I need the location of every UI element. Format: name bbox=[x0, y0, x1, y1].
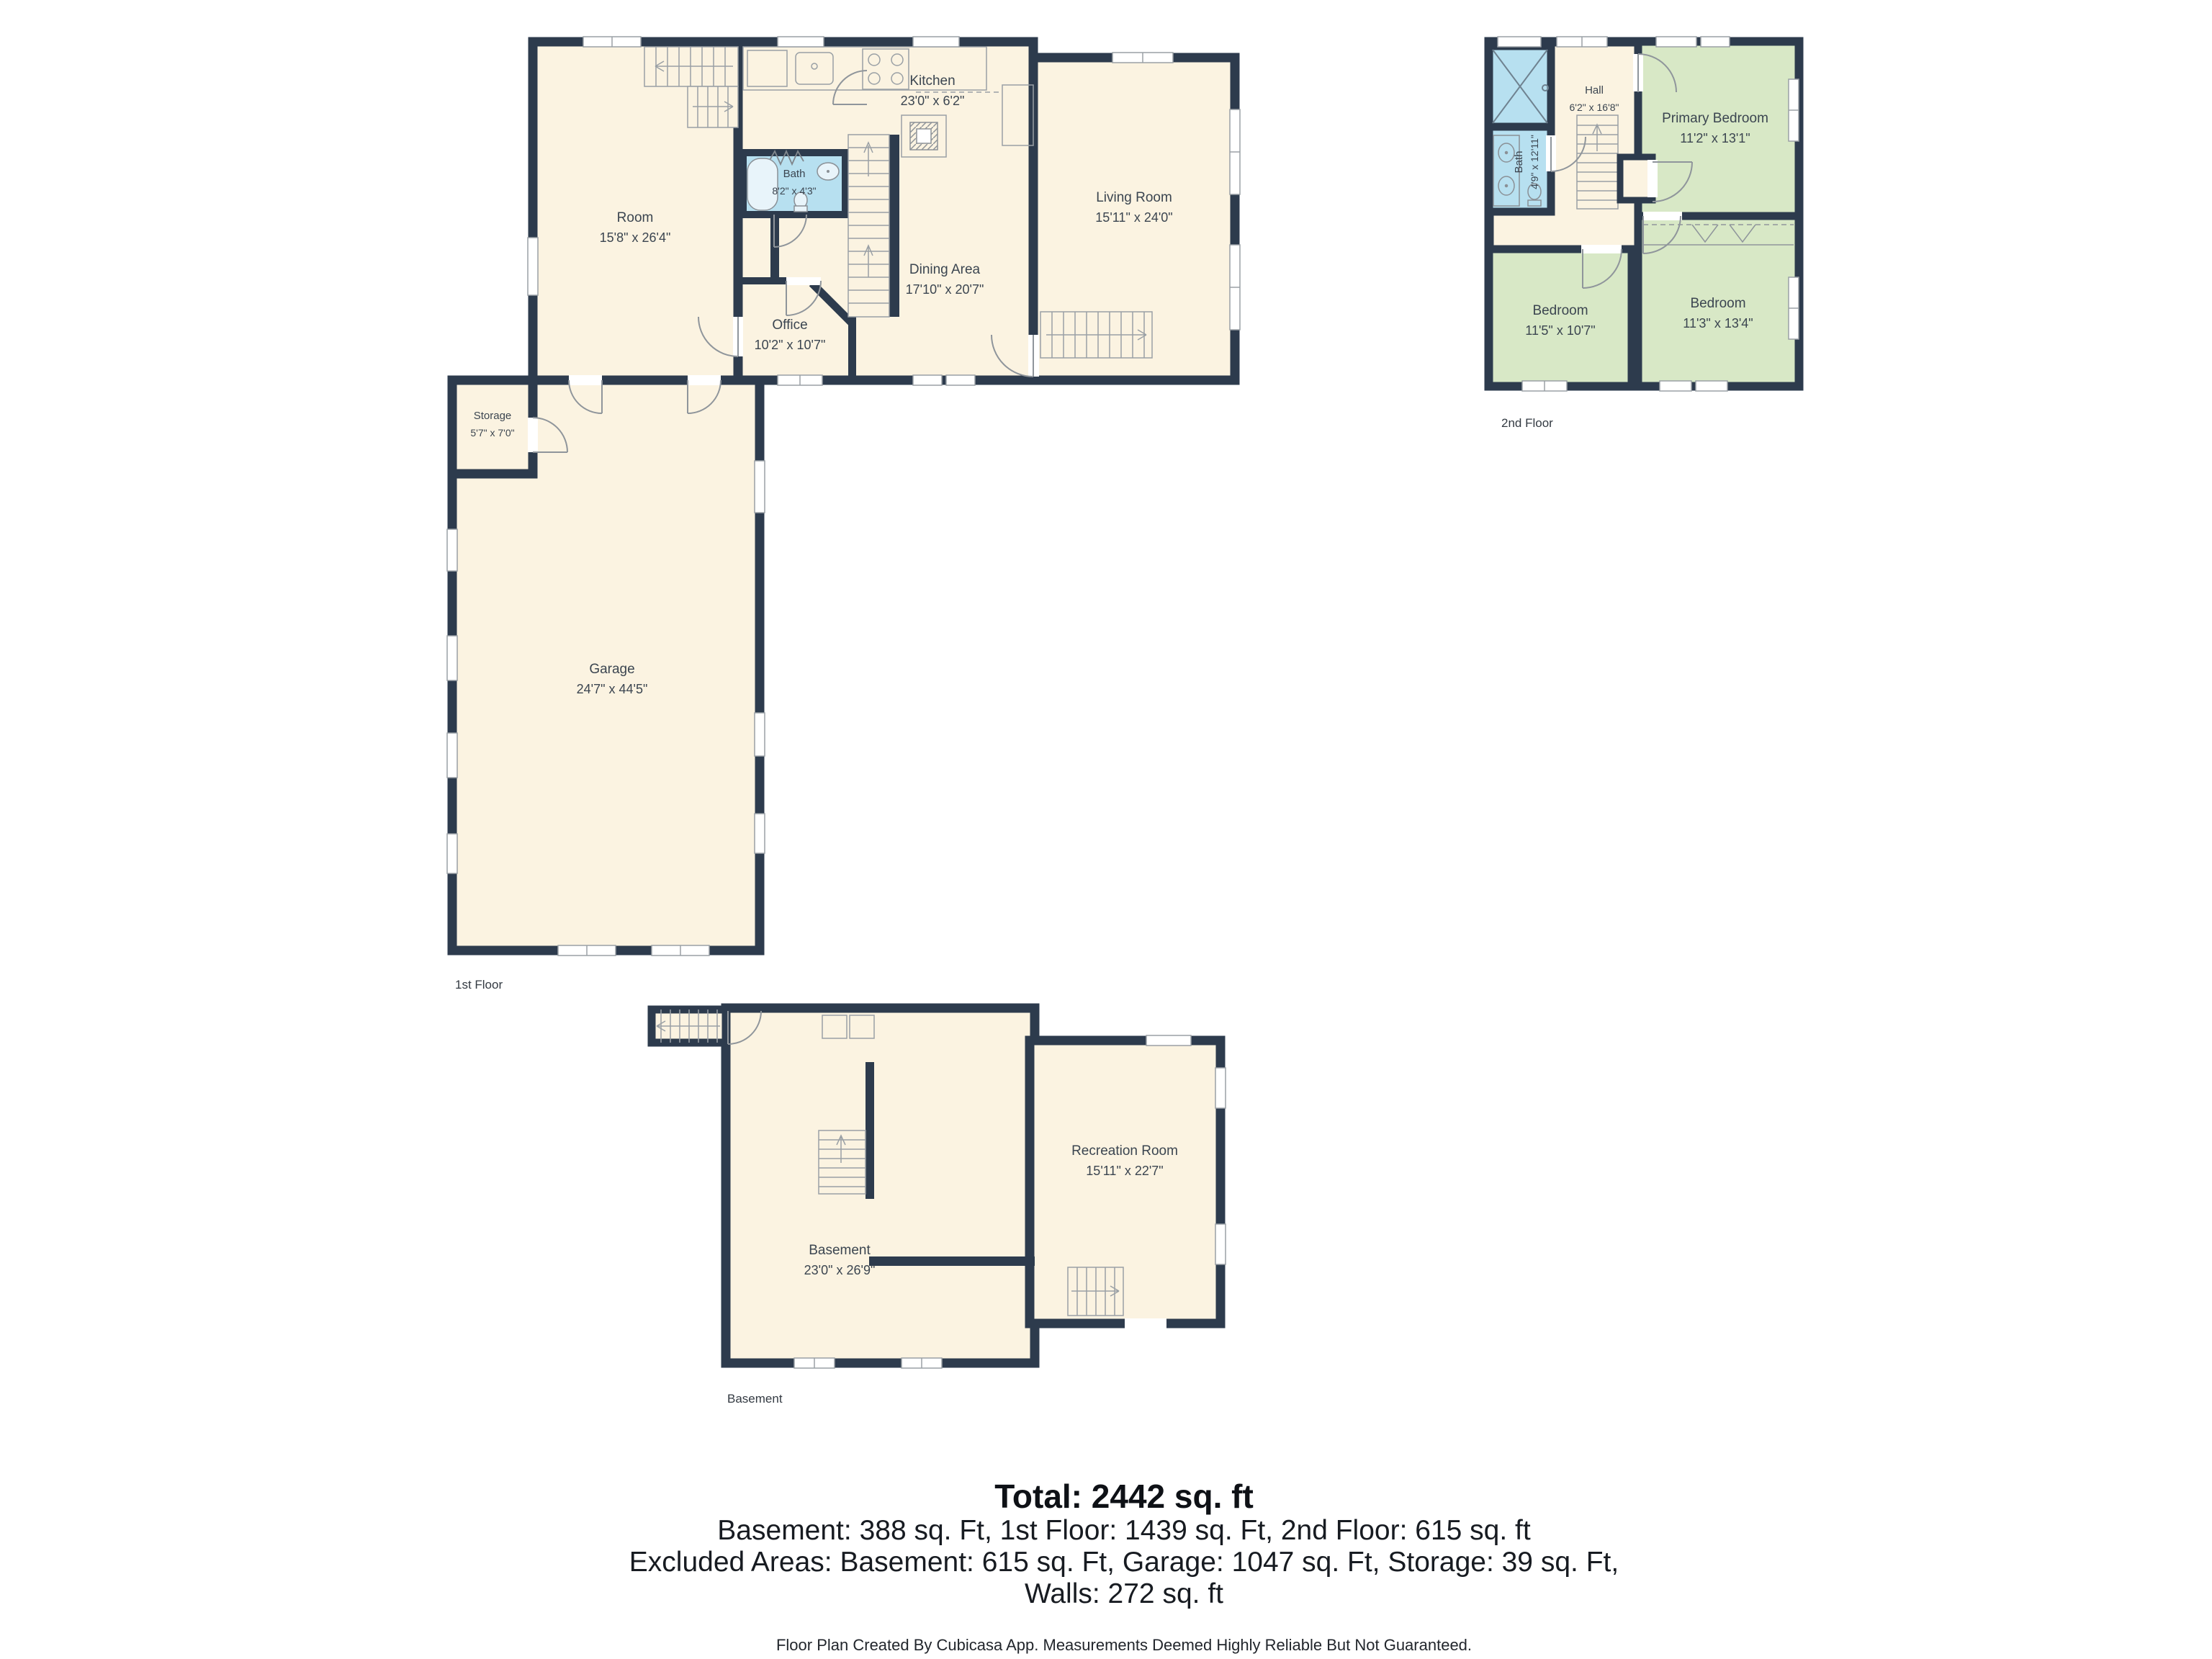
stairs-icon bbox=[1068, 1267, 1123, 1316]
stairs-icon bbox=[819, 1130, 866, 1194]
window bbox=[1660, 381, 1691, 391]
window bbox=[1696, 381, 1727, 391]
room-dims: 15'8" x 26'4" bbox=[600, 230, 671, 245]
room-dims: 11'5" x 10'7" bbox=[1525, 323, 1595, 338]
window bbox=[447, 733, 457, 778]
window bbox=[1215, 1224, 1226, 1264]
window bbox=[447, 636, 457, 680]
window bbox=[755, 713, 765, 756]
room-dims: 4'9" x 12'11" bbox=[1529, 135, 1540, 189]
room-label: Hall bbox=[1585, 84, 1604, 96]
basement-walls bbox=[726, 1008, 1220, 1363]
room-dims: 8'2" x 4'3" bbox=[772, 185, 816, 197]
second-floor-plan: Hall 6'2" x 16'8" Bath 4'9" x 12'11" Pri… bbox=[1476, 29, 1815, 439]
room-primary-bedroom-shape bbox=[1638, 42, 1799, 216]
room-label: Bedroom bbox=[1690, 296, 1745, 311]
room-label: Room bbox=[617, 210, 654, 225]
room-dims: 11'3" x 13'4" bbox=[1683, 316, 1753, 331]
floor-areas: Basement: 388 sq. Ft, 1st Floor: 1439 sq… bbox=[18, 1515, 2212, 1547]
window bbox=[1146, 1035, 1191, 1046]
room-dims: 10'2" x 10'7" bbox=[755, 338, 826, 352]
room-dims: 6'2" x 16'8" bbox=[1570, 102, 1619, 113]
kitchen-island-icon bbox=[902, 115, 946, 157]
room-label: Primary Bedroom bbox=[1662, 111, 1768, 126]
room-label: Dining Area bbox=[909, 262, 981, 277]
stairs-icon bbox=[848, 135, 889, 317]
room-label: Office bbox=[772, 318, 807, 333]
stairs-icon bbox=[1577, 115, 1618, 209]
window bbox=[913, 375, 942, 385]
excluded-areas: Excluded Areas: Basement: 615 sq. Ft, Ga… bbox=[18, 1547, 2212, 1578]
window bbox=[946, 375, 975, 385]
room-dims: 23'0" x 26'9" bbox=[804, 1263, 876, 1277]
first-floor-plan: Room 15'8" x 26'4" Kitchen 23'0" x 6'2" … bbox=[432, 29, 1253, 1008]
window bbox=[778, 37, 824, 47]
stairs-icon bbox=[1040, 312, 1152, 358]
window bbox=[1498, 37, 1541, 47]
window bbox=[447, 834, 457, 873]
disclaimer-text: Floor Plan Created By Cubicasa App. Meas… bbox=[18, 1636, 2212, 1655]
window bbox=[1701, 37, 1730, 47]
room-label: Storage bbox=[474, 410, 512, 422]
floor-label: 2nd Floor bbox=[1501, 416, 1553, 430]
room-label: Basement bbox=[809, 1243, 871, 1258]
room-dims: 17'10" x 20'7" bbox=[906, 282, 984, 297]
room-dims: 11'2" x 13'1" bbox=[1680, 131, 1750, 145]
bathtub-icon bbox=[747, 158, 778, 210]
room-label: Bath bbox=[1513, 151, 1525, 174]
room-label: Bath bbox=[783, 168, 806, 180]
room-label: Kitchen bbox=[909, 73, 955, 89]
walls-area: Walls: 272 sq. ft bbox=[18, 1578, 2212, 1610]
door-opening bbox=[1125, 1318, 1166, 1328]
room-dims: 24'7" x 44'5" bbox=[577, 682, 648, 696]
room-basement-shape bbox=[726, 1008, 1035, 1363]
basement-plan: Basement 23'0" x 26'9" Recreation Room 1… bbox=[634, 1001, 1253, 1419]
room-label: Bedroom bbox=[1532, 303, 1588, 318]
floorplan-page: Room 15'8" x 26'4" Kitchen 23'0" x 6'2" … bbox=[0, 0, 2212, 1659]
window bbox=[447, 529, 457, 571]
window bbox=[913, 37, 959, 47]
window bbox=[755, 814, 765, 853]
room-dims: 15'11" x 24'0" bbox=[1095, 210, 1172, 225]
area-summary: Total: 2442 sq. ft Basement: 388 sq. Ft,… bbox=[18, 1478, 2212, 1610]
room-recreation-shape bbox=[1030, 1040, 1220, 1323]
room-label: Living Room bbox=[1096, 190, 1172, 205]
window bbox=[1656, 37, 1696, 47]
room-label: Garage bbox=[589, 662, 634, 677]
window bbox=[755, 461, 765, 513]
room-label: Recreation Room bbox=[1071, 1143, 1178, 1159]
room-dims: 15'11" x 22'7" bbox=[1086, 1164, 1163, 1178]
window bbox=[528, 238, 538, 295]
room-dims: 5'7" x 7'0" bbox=[470, 427, 514, 439]
window bbox=[1215, 1068, 1226, 1108]
floor-label: Basement bbox=[727, 1392, 783, 1406]
floor-label: 1st Floor bbox=[455, 978, 503, 992]
room-dims: 23'0" x 6'2" bbox=[901, 94, 965, 108]
total-area: Total: 2442 sq. ft bbox=[18, 1478, 2212, 1515]
